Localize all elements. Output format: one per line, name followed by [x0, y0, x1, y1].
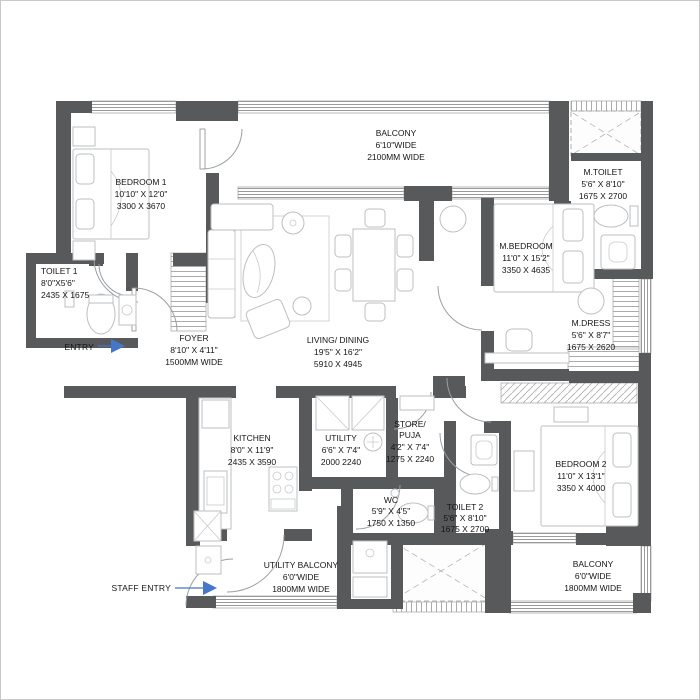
- room-size-ft: 19'5" X 16'2": [314, 347, 362, 357]
- staff-entry-annotation: STAFF ENTRY: [111, 581, 217, 595]
- wall-segment: [56, 101, 71, 259]
- room-name: TOILET 1: [41, 266, 78, 276]
- nightstand: [554, 407, 588, 422]
- room-name: BALCONY: [376, 128, 417, 138]
- window-glazing: [213, 596, 337, 608]
- plant: [238, 241, 280, 301]
- room-name: FOYER: [179, 333, 208, 343]
- washbasin: [601, 235, 635, 269]
- sofa-side: [208, 230, 235, 318]
- chair: [397, 235, 413, 257]
- chair: [335, 235, 351, 257]
- pillow: [76, 154, 94, 184]
- room-name: M.BEDROOM: [499, 241, 552, 251]
- room-size-ft: 5'6" X 8'10": [443, 513, 486, 523]
- room-name: KITCHEN: [233, 433, 270, 443]
- room-size-ft: 4'2" X 7'4": [391, 442, 430, 452]
- pillow: [563, 209, 583, 241]
- wall-segment: [186, 596, 216, 608]
- pillow: [76, 199, 94, 229]
- label-toilet1: TOILET 1 8'0"X5'6" 2435 X 1675: [41, 266, 89, 300]
- pillow: [563, 251, 583, 283]
- room-size-mm: 2435 X 1675: [41, 290, 89, 300]
- bedroom2-wardrobe: [501, 383, 637, 403]
- window-glazing: [641, 546, 651, 601]
- room-name: UTILITY: [325, 433, 357, 443]
- cistern: [492, 477, 498, 491]
- room-name: M.TOILET: [583, 167, 622, 177]
- wall-segment: [576, 533, 610, 545]
- label-utility: UTILITY 6'6" X 7'4" 2000 2240: [321, 433, 361, 467]
- wc-pot: [594, 205, 628, 227]
- wall-segment: [639, 353, 651, 383]
- wall-segment: [391, 533, 403, 609]
- room-name: BALCONY: [573, 559, 614, 569]
- side-table: [282, 212, 304, 234]
- label-balcony-bottom: BALCONY 6'0"WIDE 1800MM WIDE: [564, 559, 622, 593]
- window-glazing: [91, 101, 176, 113]
- wall-segment: [126, 253, 138, 291]
- label-mdress: M.DRESS 5'6" X 8'7" 1675 X 2620: [567, 318, 615, 352]
- label-kitchen: KITCHEN 8'0" X 11'9" 2435 X 3590: [228, 433, 276, 467]
- room-name: LIVING/ DINING: [307, 335, 369, 345]
- stool: [578, 288, 604, 314]
- label-living-dining: LIVING/ DINING 19'5" X 16'2" 5910 X 4945: [307, 335, 369, 369]
- staff-entry-arrow-icon: [203, 581, 217, 595]
- wall-segment: [299, 391, 312, 491]
- room-size-ft: 8'0"X5'6": [41, 278, 75, 288]
- mdress-wardrobe: [613, 277, 639, 349]
- room-size-mm: 1675 X 2700: [441, 524, 489, 534]
- mdress-furniture: [485, 329, 569, 363]
- wall-segment: [337, 506, 351, 606]
- wall-segment: [64, 386, 236, 398]
- chair: [365, 303, 385, 321]
- fridge: [202, 400, 229, 428]
- wall-segment: [638, 381, 651, 533]
- room-name: M.DRESS: [572, 318, 611, 328]
- label-balcony-top: BALCONY 6'10"WIDE 2100MM WIDE: [367, 128, 425, 162]
- cabinet: [196, 546, 221, 574]
- chair: [397, 269, 413, 291]
- shaft-top-right: [571, 111, 641, 156]
- wall-segment: [284, 529, 312, 541]
- room-size-ft: 5'9" X 4'5": [372, 506, 411, 516]
- wall-segment: [444, 421, 456, 541]
- staff-entry-label: STAFF ENTRY: [111, 583, 171, 593]
- dining-table: [353, 229, 395, 301]
- wall-segment: [484, 421, 511, 433]
- window-glazing: [641, 279, 651, 353]
- label-toilet2: TOILET 2 5'6" X 8'10" 1675 X 2700: [441, 502, 489, 534]
- door-arc-entry: [134, 288, 177, 331]
- label-utility-balcony: UTILITY BALCONY 6'0"WIDE 1800MM WIDE: [264, 560, 339, 594]
- wall-segment: [26, 253, 36, 348]
- nightstand: [73, 241, 95, 260]
- room-name: TOILET 2: [447, 502, 484, 512]
- room-name: BEDROOM 2: [555, 459, 606, 469]
- room-size-ft: 8'0" X 11'9": [231, 445, 274, 455]
- side-table: [293, 297, 311, 315]
- toilet2-fixtures: [460, 435, 498, 494]
- room-size-ft: 6'0"WIDE: [283, 572, 320, 582]
- wall-segment: [569, 371, 639, 383]
- wall-segment: [499, 541, 511, 613]
- window-glazing: [513, 533, 576, 543]
- shaft-grill: [571, 101, 641, 111]
- room-size-mm: 1675 X 2620: [567, 342, 615, 352]
- store-shelf: [400, 396, 434, 410]
- label-bedroom1: BEDROOM 1 10'10" X 12'0" 3300 X 3670: [115, 177, 168, 211]
- wall-segment: [606, 526, 651, 546]
- cistern: [630, 206, 638, 226]
- chair: [506, 329, 532, 351]
- room-size-ft: 6'0"WIDE: [575, 571, 612, 581]
- pillow: [613, 433, 631, 467]
- window-glazing: [238, 187, 404, 199]
- wall-segment: [485, 529, 499, 613]
- door-arc-bedroom1-balcony: [202, 129, 242, 169]
- room-size-mm: 5910 X 4945: [314, 359, 362, 369]
- door-arc-mbedroom: [438, 286, 482, 330]
- room-size-mm: 1275 X 2240: [386, 454, 434, 464]
- wall-segment: [312, 477, 446, 489]
- label-mtoilet: M.TOILET 5'6" X 8'10" 1675 X 2700: [579, 167, 627, 201]
- room-name: UTILITY BALCONY: [264, 560, 339, 570]
- pillow: [613, 483, 631, 517]
- mtoilet-fixtures: [594, 205, 638, 269]
- room-size-mm: 3300 X 3670: [117, 201, 165, 211]
- room-name: WC: [384, 495, 398, 505]
- wall-segment: [176, 101, 238, 121]
- washbasin: [119, 295, 136, 325]
- armchair: [245, 298, 291, 340]
- living-furniture: [208, 204, 413, 340]
- room-size-mm: 1500MM WIDE: [165, 357, 223, 367]
- room-size-ft: 10'10" X 12'0": [115, 189, 168, 199]
- room-size-mm: 1800MM WIDE: [564, 583, 622, 593]
- window-glazing: [452, 187, 549, 199]
- room-size-ft: 11'0" X 15'2": [502, 253, 549, 263]
- room-size-mm: 1800MM WIDE: [272, 584, 330, 594]
- utility-balcony-fixtures: [353, 541, 387, 597]
- room-size-ft: 11'0" X 13'1": [557, 471, 604, 481]
- cistern: [89, 295, 113, 303]
- wall-segment: [499, 433, 511, 543]
- wall-segment: [633, 593, 651, 613]
- room-size-ft: 5'6" X 8'7": [572, 330, 611, 340]
- window-glazing: [238, 101, 549, 113]
- wall-segment: [571, 153, 641, 161]
- shaft-grill: [393, 602, 489, 612]
- sofa-back: [211, 204, 273, 230]
- chair: [365, 209, 385, 227]
- wall-segment: [549, 101, 569, 201]
- dresser-counter: [485, 353, 569, 363]
- room-name: STORE/: [394, 419, 426, 429]
- dresser: [514, 451, 534, 491]
- label-wc: WC 5'9" X 4'5" 1750 X 1350: [367, 495, 415, 528]
- wall-segment: [433, 376, 465, 388]
- room-size-mm: 2000 2240: [321, 457, 361, 467]
- room-size-mm: 2435 X 3590: [228, 457, 276, 467]
- room-size-mm: 3350 X 4635: [502, 265, 550, 275]
- wall-segment: [481, 198, 494, 286]
- label-mbedroom: M.BEDROOM 11'0" X 15'2" 3350 X 4635: [499, 241, 552, 275]
- room-name: PUJA: [399, 430, 421, 440]
- wall-segment: [481, 369, 569, 381]
- wall-segment: [419, 186, 434, 261]
- nightstand: [73, 127, 95, 146]
- room-size-mm: 2100MM WIDE: [367, 152, 425, 162]
- entry-label: ENTRY: [64, 342, 94, 352]
- floor-plan-svg: BALCONY 6'10"WIDE 2100MM WIDE BEDROOM 1 …: [1, 1, 700, 700]
- room-size-ft: 6'10"WIDE: [375, 140, 416, 150]
- label-bedroom2: BEDROOM 2 11'0" X 13'1" 3350 X 4000: [555, 459, 606, 493]
- stool: [440, 206, 466, 232]
- room-size-mm: 1750 X 1350: [367, 518, 415, 528]
- room-size-mm: 1675 X 2700: [579, 191, 627, 201]
- window-glazing: [509, 601, 637, 613]
- room-size-ft: 6'6" X 7'4": [322, 445, 361, 455]
- wc-pot: [460, 474, 490, 494]
- wall-segment: [641, 101, 653, 279]
- room-size-ft: 5'6" X 8'10": [581, 179, 624, 189]
- wall-segment: [337, 599, 395, 609]
- washbasin: [471, 435, 497, 465]
- chair: [335, 269, 351, 291]
- label-foyer: FOYER 8'10" X 4'11" 1500MM WIDE: [165, 333, 223, 367]
- room-name: BEDROOM 1: [115, 177, 166, 187]
- cabinet: [353, 577, 387, 597]
- door-leaf: [200, 129, 205, 169]
- wall-segment: [386, 398, 398, 481]
- room-size-mm: 3350 X 4000: [557, 483, 605, 493]
- floor-plan-canvas: BALCONY 6'10"WIDE 2100MM WIDE BEDROOM 1 …: [0, 0, 700, 700]
- room-size-ft: 8'10" X 4'11": [170, 345, 217, 355]
- cistern: [428, 506, 434, 520]
